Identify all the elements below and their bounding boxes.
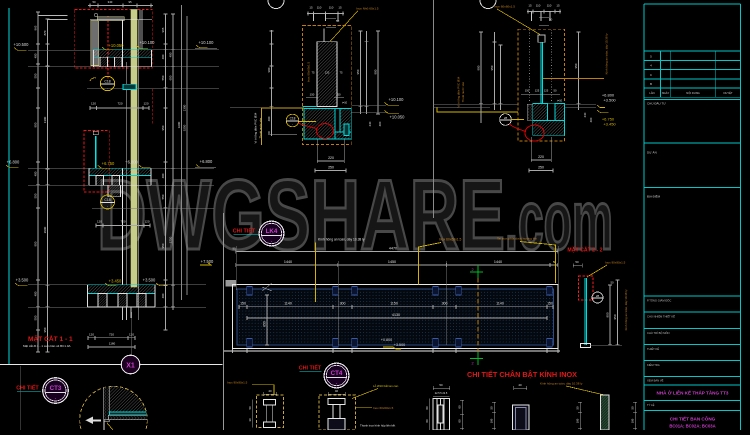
svg-text:400: 400 <box>589 117 593 122</box>
svg-text:-: - <box>292 123 293 127</box>
svg-text:Kính hông an toàn, dày 10.38 l: Kính hông an toàn, dày 10.38 ly <box>540 382 583 386</box>
svg-text:NGÀY: NGÀY <box>662 91 670 95</box>
svg-text:Lỗ Ø10 bắt lan can: Lỗ Ø10 bắt lan can <box>373 383 399 388</box>
svg-text:550: 550 <box>34 193 38 198</box>
svg-text:60: 60 <box>425 406 429 409</box>
svg-text:50: 50 <box>610 281 614 285</box>
svg-text:950: 950 <box>356 69 360 74</box>
svg-text:50: 50 <box>553 260 557 264</box>
svg-text:+6.800: +6.800 <box>200 159 213 164</box>
svg-text:1440: 1440 <box>494 260 502 264</box>
svg-text:2: 2 <box>471 268 473 272</box>
svg-text:120: 120 <box>144 220 149 224</box>
svg-text:Inox 60x60x1.5: Inox 60x60x1.5 <box>439 238 462 242</box>
svg-text:28: 28 <box>596 294 600 298</box>
svg-text:870: 870 <box>43 30 47 35</box>
svg-text:120: 120 <box>325 71 330 75</box>
svg-text:950: 950 <box>574 63 578 68</box>
svg-text:550: 550 <box>34 73 38 78</box>
svg-text:+6.750: +6.750 <box>102 161 115 166</box>
svg-text:150: 150 <box>525 89 530 93</box>
svg-text:950: 950 <box>161 125 165 130</box>
svg-text:120: 120 <box>97 220 102 224</box>
svg-text:50: 50 <box>232 246 236 250</box>
svg-text:720: 720 <box>117 102 122 106</box>
svg-text:Vị trí ống điện PVC Ø34: Vị trí ống điện PVC Ø34 <box>457 76 461 107</box>
svg-text:Kính hông an toàn, dày 10.38 l: Kính hông an toàn, dày 10.38 ly <box>605 33 609 74</box>
svg-text:15: 15 <box>556 4 560 8</box>
svg-text:Inox 60x60x1.5: Inox 60x60x1.5 <box>373 406 394 410</box>
svg-text:100: 100 <box>576 418 580 423</box>
svg-text:Inox 60x60x1.5: Inox 60x60x1.5 <box>494 5 515 9</box>
svg-text:3250: 3250 <box>183 124 187 131</box>
svg-text:+3.500: +3.500 <box>143 278 156 283</box>
svg-text:220: 220 <box>328 156 334 160</box>
svg-text:720: 720 <box>120 220 125 224</box>
svg-text:400: 400 <box>161 54 165 59</box>
svg-text:+10.050: +10.050 <box>109 43 125 48</box>
svg-text:50: 50 <box>337 93 341 97</box>
svg-text:650: 650 <box>169 75 173 80</box>
svg-text:+3.450: +3.450 <box>603 122 616 127</box>
svg-text:120: 120 <box>91 102 96 106</box>
svg-text:2900: 2900 <box>43 226 47 233</box>
svg-text:LẦN: LẦN <box>649 91 654 95</box>
svg-text:60: 60 <box>458 405 462 408</box>
svg-text:2750: 2750 <box>169 236 173 243</box>
svg-text:+10.100: +10.100 <box>389 97 405 102</box>
svg-text:950: 950 <box>613 314 617 319</box>
svg-text:+3.500: +3.500 <box>394 343 405 347</box>
svg-text:Inox 90x90x1.5: Inox 90x90x1.5 <box>227 381 248 385</box>
svg-text:-: - <box>107 205 108 209</box>
svg-text:50: 50 <box>92 0 96 4</box>
svg-text:CHI TIẾT CHÂN BẬT KÍNH INOX: CHI TIẾT CHÂN BẬT KÍNH INOX <box>467 369 577 379</box>
svg-text:1440: 1440 <box>284 260 292 264</box>
svg-text:50: 50 <box>575 260 579 264</box>
svg-text:1300: 1300 <box>183 104 187 111</box>
svg-text:900: 900 <box>374 69 378 74</box>
svg-text:75: 75 <box>312 71 315 75</box>
svg-text:4470: 4470 <box>389 246 397 250</box>
svg-text:400: 400 <box>34 291 38 296</box>
svg-text:95: 95 <box>128 0 132 4</box>
svg-text:BC01A; BC02A; BC03A: BC01A; BC02A; BC03A <box>669 424 715 429</box>
svg-text:120: 120 <box>89 333 94 337</box>
svg-text:60: 60 <box>425 419 429 422</box>
svg-text:60: 60 <box>458 419 462 422</box>
svg-text:1160: 1160 <box>109 342 116 346</box>
svg-text:Mặt cắt đt 1 - 1 xem bản vẽ BC: Mặt cắt đt 1 - 1 xem bản vẽ BC1.0A <box>23 343 71 348</box>
svg-text:720: 720 <box>109 333 114 337</box>
svg-text:1140: 1140 <box>284 302 292 306</box>
svg-text:120: 120 <box>143 102 148 106</box>
svg-text:+7.500: +7.500 <box>201 259 214 264</box>
svg-text:CHI TIẾT: CHI TIẾT <box>233 228 256 235</box>
svg-text:Thanh inox hình hộp liên kết: Thanh inox hình hộp liên kết <box>360 424 395 428</box>
svg-text:C18: C18 <box>104 80 110 84</box>
svg-text:110: 110 <box>329 6 334 10</box>
svg-text:CT3: CT3 <box>50 385 62 392</box>
svg-text:DỰ ÁN: DỰ ÁN <box>647 151 657 155</box>
svg-text:400: 400 <box>161 173 165 178</box>
svg-text:CHỦ ĐẦU TƯ: CHỦ ĐẦU TƯ <box>647 101 666 106</box>
svg-text:4130: 4130 <box>392 313 400 317</box>
svg-text:100: 100 <box>631 418 635 423</box>
svg-text:CHI TIẾT: CHI TIẾT <box>16 385 39 392</box>
svg-text:230: 230 <box>368 121 372 126</box>
svg-text:C18: C18 <box>290 117 296 121</box>
svg-text:220: 220 <box>538 155 544 159</box>
svg-text:t=10: t=10 <box>342 101 348 105</box>
svg-text:340: 340 <box>108 0 113 4</box>
svg-text:15: 15 <box>309 6 313 10</box>
svg-text:2: 2 <box>471 362 473 366</box>
svg-text:C18: C18 <box>104 198 110 202</box>
svg-text:230: 230 <box>583 112 587 117</box>
svg-text:950: 950 <box>43 327 47 332</box>
svg-text:MẶT CẮT 1 - 1: MẶT CẮT 1 - 1 <box>28 334 73 343</box>
svg-text:1450: 1450 <box>388 260 396 264</box>
svg-text:+3.500: +3.500 <box>603 98 616 103</box>
svg-text:15: 15 <box>528 4 532 8</box>
svg-text:900: 900 <box>477 65 481 70</box>
svg-text:400: 400 <box>34 171 38 176</box>
svg-text:400: 400 <box>267 116 271 121</box>
svg-text:550: 550 <box>34 315 38 320</box>
svg-text:+6.800: +6.800 <box>125 160 138 165</box>
svg-text:+6.800: +6.800 <box>7 160 20 165</box>
svg-text:50: 50 <box>549 18 553 22</box>
svg-text:125: 125 <box>544 89 549 93</box>
svg-text:950: 950 <box>34 122 38 127</box>
svg-text:50: 50 <box>631 406 635 409</box>
svg-text:40: 40 <box>335 389 339 393</box>
svg-text:40: 40 <box>518 383 522 387</box>
svg-text:+3.500: +3.500 <box>16 278 29 283</box>
svg-text:B: B <box>650 82 652 86</box>
svg-text:50: 50 <box>248 406 252 409</box>
svg-text:+3.450: +3.450 <box>109 279 122 284</box>
svg-text:300: 300 <box>340 302 346 306</box>
svg-text:50: 50 <box>490 406 494 409</box>
svg-text:30: 30 <box>248 418 252 421</box>
svg-text:Thoát nước sàn: Thoát nước sàn <box>259 117 263 138</box>
svg-text:CT4: CT4 <box>331 370 343 377</box>
svg-text:950: 950 <box>161 243 165 248</box>
svg-text:400: 400 <box>169 52 173 57</box>
svg-text:1300: 1300 <box>43 116 47 123</box>
svg-text:DWGSHARE: DWGSHARE <box>97 159 505 270</box>
svg-text:1150: 1150 <box>390 302 398 306</box>
svg-text:1140: 1140 <box>496 302 504 306</box>
svg-text:550: 550 <box>161 75 165 80</box>
svg-text:3200: 3200 <box>177 121 181 128</box>
svg-text:+0.800: +0.800 <box>381 338 392 342</box>
svg-text:Kính hông an toàn, dày 10.38 l: Kính hông an toàn, dày 10.38 ly <box>624 289 628 330</box>
svg-text:+10.500: +10.500 <box>14 42 30 47</box>
svg-text:+10.050: +10.050 <box>390 115 406 120</box>
svg-text:965: 965 <box>34 25 38 30</box>
svg-text:Kính hông an toàn, dày 10.38 l: Kính hông an toàn, dày 10.38 ly <box>318 238 365 242</box>
svg-text:X1: X1 <box>126 362 135 369</box>
svg-text:110: 110 <box>547 4 552 8</box>
svg-text:300: 300 <box>442 302 448 306</box>
svg-text:CHI TIẾT BAN CÔNG: CHI TIẾT BAN CÔNG <box>670 415 716 422</box>
svg-text:75: 75 <box>340 71 343 75</box>
svg-text:400: 400 <box>161 293 165 298</box>
svg-text:MẶT CẮT 2 - 2: MẶT CẮT 2 - 2 <box>567 246 602 254</box>
svg-text:LK4: LK4 <box>266 228 278 235</box>
svg-text:550: 550 <box>161 194 165 199</box>
svg-text:Inox 60x60x1.5: Inox 60x60x1.5 <box>307 62 311 83</box>
svg-text:50: 50 <box>267 131 271 135</box>
svg-text:+10.100: +10.100 <box>140 40 156 45</box>
svg-text:965: 965 <box>161 27 165 32</box>
svg-text:250: 250 <box>328 165 334 169</box>
svg-text:NHÀ Ở LIÊN KẾ THẤP TẦNG TT3: NHÀ Ở LIÊN KẾ THẤP TẦNG TT3 <box>657 389 729 396</box>
svg-text:+10.100: +10.100 <box>199 40 215 45</box>
svg-text:900: 900 <box>267 67 271 72</box>
svg-text:110: 110 <box>317 6 322 10</box>
svg-text:100: 100 <box>490 418 494 423</box>
svg-text:400: 400 <box>378 121 382 126</box>
svg-text:50: 50 <box>336 19 340 23</box>
svg-text:Vị trí ống điện PVC Ø34: Vị trí ống điện PVC Ø34 <box>254 112 258 143</box>
svg-text:15: 15 <box>338 6 342 10</box>
svg-text:150: 150 <box>310 93 315 97</box>
svg-text:400: 400 <box>34 53 38 58</box>
svg-text:950: 950 <box>490 65 494 70</box>
svg-text:125: 125 <box>535 89 540 93</box>
svg-text:22.5 5 22.5: 22.5 5 22.5 <box>435 392 448 395</box>
svg-text:900: 900 <box>606 312 610 317</box>
svg-text:850: 850 <box>263 321 267 327</box>
svg-text:ĐỊA ĐIỂM: ĐỊA ĐIỂM <box>647 194 661 199</box>
svg-text:50: 50 <box>439 383 443 387</box>
svg-text:150: 150 <box>240 302 246 306</box>
svg-text:-: - <box>107 86 108 90</box>
svg-text:40: 40 <box>268 389 272 393</box>
svg-text:150: 150 <box>547 302 553 306</box>
svg-text:250: 250 <box>538 165 544 169</box>
svg-text:Tai inox phía dưới hướng lên: Tai inox phía dưới hướng lên <box>497 237 537 241</box>
svg-text:110: 110 <box>536 4 541 8</box>
svg-text:CHI TIẾT: CHI TIẾT <box>299 365 322 372</box>
svg-text:Inox 90x90x1.5: Inox 90x90x1.5 <box>605 261 626 265</box>
svg-text:Thoát nước sàn: Thoát nước sàn <box>461 81 465 102</box>
svg-text:950: 950 <box>34 241 38 246</box>
svg-text:Inox Nhũ 60x1.5: Inox Nhũ 60x1.5 <box>356 7 379 11</box>
svg-text:50: 50 <box>576 406 580 409</box>
svg-text:28: 28 <box>504 116 508 120</box>
svg-text:t=10: t=10 <box>557 99 563 103</box>
svg-text:50: 50 <box>554 89 557 93</box>
